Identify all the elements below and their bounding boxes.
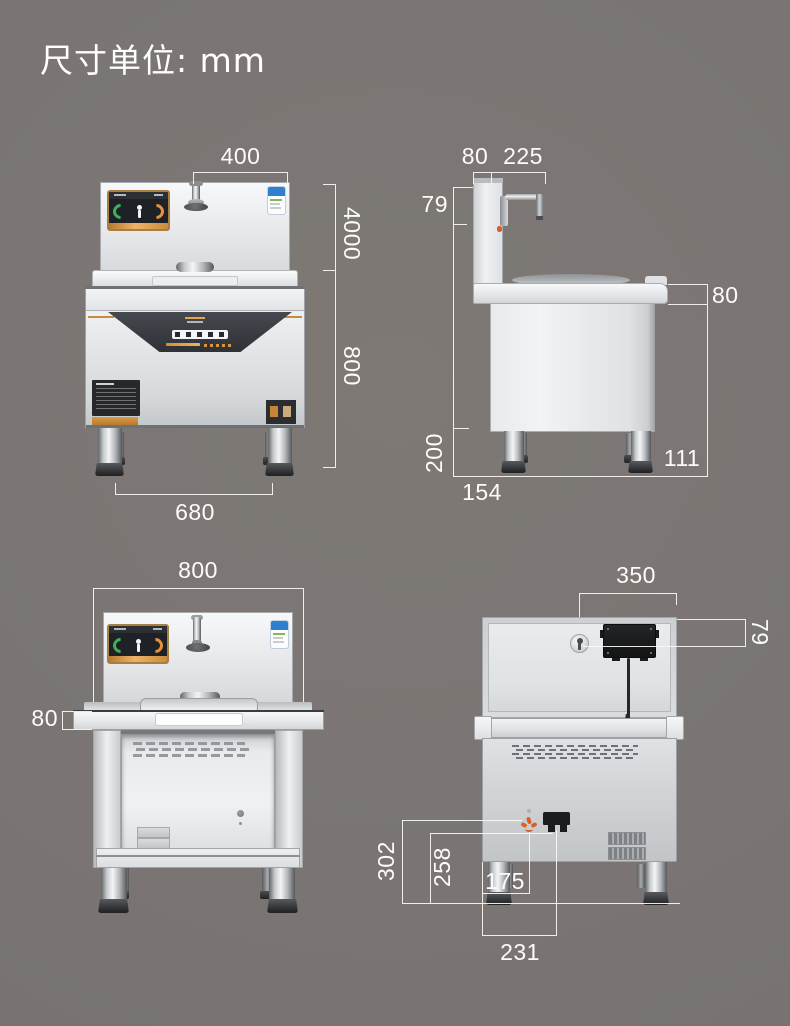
dimension-line (453, 187, 454, 476)
brand-logo (185, 317, 205, 319)
drawer-handle (155, 713, 243, 726)
dimension-line (62, 711, 92, 712)
body-bottom-line (86, 425, 304, 428)
counter-end-cap (666, 716, 684, 740)
panel-dot (239, 822, 242, 825)
side-vent (608, 832, 646, 845)
gauge-arc-right (146, 201, 167, 222)
control-display (107, 190, 170, 231)
leg-front (269, 868, 295, 904)
power-cable (627, 658, 630, 720)
spec-label-orange-strip (92, 417, 138, 425)
leg-foot (263, 457, 277, 465)
leg-foot (486, 892, 512, 905)
body-side (490, 304, 655, 432)
display-figure-icon (138, 210, 141, 218)
junction-box-ear (656, 630, 659, 638)
splash-top-cap (473, 178, 503, 183)
leg-front (98, 428, 122, 466)
orange-accent-right (276, 316, 302, 318)
panel-knob (237, 810, 244, 817)
vent-grille (136, 748, 250, 751)
dimension-line (579, 593, 677, 594)
dimension-label: 4000 (340, 196, 364, 272)
dimension-label: 231 (482, 940, 558, 964)
inlet-key-stem (578, 643, 581, 650)
dimension-line (402, 820, 403, 903)
frame-post-right (275, 730, 303, 868)
frame-post-left (93, 730, 121, 868)
vent-grille (512, 745, 638, 747)
leg-rear (505, 864, 513, 888)
connector-pin (560, 825, 567, 832)
counter-front-band (86, 289, 304, 311)
dimension-label: 111 (660, 446, 704, 470)
display-figure-icon (137, 205, 142, 210)
dimension-line (93, 588, 304, 589)
counter-band-rear (475, 718, 684, 738)
power-connector (543, 812, 570, 825)
energy-label (271, 621, 288, 648)
leg-foot (116, 891, 129, 899)
inlet-key (577, 638, 583, 644)
drain-icon (525, 827, 533, 832)
gauge-arc-left (110, 635, 131, 656)
button-strip (172, 330, 228, 339)
button-icons (175, 332, 225, 337)
indicator-dots (204, 344, 234, 347)
dimension-label: 225 (500, 144, 546, 168)
leg-front (488, 862, 510, 894)
drain-icon (530, 822, 537, 828)
lid-handle (176, 262, 214, 272)
lower-back-panel (482, 738, 677, 862)
dimension-label: 80 (712, 283, 748, 307)
drain-icon (520, 822, 527, 828)
back-panel (488, 623, 671, 712)
vent-grille (133, 754, 245, 757)
shelf-lip (96, 855, 300, 857)
ground-line (402, 903, 680, 904)
energy-label (268, 187, 285, 214)
countertop (73, 710, 324, 730)
leg-foot (501, 461, 526, 473)
leg-rear (118, 868, 129, 894)
leg-front (504, 431, 524, 463)
junction-box-tab (640, 658, 648, 661)
under-counter-shadow (93, 730, 303, 734)
dimension-label: 154 (458, 480, 506, 504)
faucet-head (191, 615, 203, 620)
dimension-label: 400 (198, 144, 283, 168)
dimension-label: 175 (480, 869, 530, 893)
vent-grille (133, 742, 245, 745)
counter-edge-line (73, 710, 324, 712)
faucet (193, 617, 201, 645)
leg-front (631, 431, 651, 463)
junction-box (603, 624, 656, 658)
faucet-tip (536, 216, 543, 220)
wok-collar-left (84, 702, 142, 711)
pilot-flame-icon (497, 226, 502, 232)
display-figure-icon (137, 644, 140, 652)
countertop-side (473, 283, 668, 304)
faucet-mount (500, 196, 508, 226)
leg-foot (643, 892, 669, 905)
dimension-label: 80 (18, 706, 58, 730)
leg-rear (626, 433, 634, 457)
dimension-line (473, 172, 546, 173)
bottom-shelf (96, 848, 300, 868)
dimension-line (707, 284, 708, 476)
faucet-head (189, 181, 203, 186)
dimension-label: 350 (600, 563, 672, 587)
brand-subtext (187, 321, 203, 323)
control-panel (108, 312, 292, 352)
inner-box (137, 838, 170, 849)
dimension-label: 680 (155, 500, 235, 524)
lid-handle (180, 692, 220, 701)
pot-lid-side (512, 274, 630, 286)
front-panel (121, 734, 275, 850)
view-rear: 350 (0, 0, 790, 1026)
dimension-line (193, 172, 288, 173)
leg-rear (113, 432, 124, 460)
side-vent (608, 847, 646, 860)
spec-label (92, 380, 140, 416)
faucet (192, 183, 200, 203)
dimension-label: 80 (455, 144, 495, 168)
leg-foot (265, 463, 294, 476)
junction-box-tab (612, 658, 620, 661)
display-figure-icon (136, 639, 141, 644)
body-front (85, 286, 305, 428)
junction-box-ear (600, 630, 603, 638)
vent-grille (516, 749, 636, 751)
page-title: 尺寸单位: mm (40, 34, 266, 82)
orange-slider (166, 343, 200, 346)
ground-line (453, 476, 708, 477)
dimension-line (430, 833, 431, 903)
inner-box (137, 827, 170, 838)
dimension-label: 302 (374, 836, 398, 886)
faucet-spout (536, 194, 543, 218)
wok-collar-right (250, 702, 312, 711)
faucet-collar (188, 199, 204, 206)
dimension-label: 200 (422, 428, 446, 478)
faucet-collar (192, 640, 202, 646)
counter-end-cap (474, 716, 492, 740)
control-display (107, 624, 169, 664)
dimension-label: 79 (412, 192, 448, 216)
back-panel-frame (482, 617, 677, 718)
water-inlet (570, 634, 589, 653)
faucet-base (186, 643, 210, 652)
orange-accent-left (88, 316, 114, 318)
dimension-label: 800 (340, 336, 364, 396)
dimension-line (677, 619, 745, 620)
display-text-dash (154, 194, 163, 196)
power-cable-end (624, 714, 629, 726)
dimension-line (335, 184, 336, 468)
dimension-line (115, 494, 273, 495)
connector-pin (548, 825, 555, 832)
leg-rear (637, 864, 645, 888)
screw-dot (527, 809, 531, 813)
leg-foot (111, 457, 125, 465)
leg-front (645, 862, 667, 894)
lid-platform (92, 270, 298, 287)
faucet-arm (505, 194, 543, 200)
splash-panel (103, 612, 293, 712)
corner-badge (266, 400, 296, 424)
display-orange-strip (109, 223, 168, 229)
counter-rear-cap (645, 276, 667, 285)
leg-foot (95, 463, 124, 476)
view-front-upper: 400 4000 800 680 (0, 0, 790, 1026)
drain-icon (526, 817, 532, 825)
leg-foot (624, 455, 635, 463)
leg-rear (265, 432, 276, 460)
leg-front (101, 868, 127, 904)
splash-panel-side (473, 178, 503, 284)
leg-foot (260, 891, 273, 899)
display-titlebar (109, 192, 168, 199)
dimension-label: 79 (748, 613, 772, 651)
leg-rear (518, 433, 527, 457)
leg-front (268, 428, 292, 466)
energy-label-header (268, 187, 285, 196)
gauge-arc-right (145, 635, 166, 656)
vent-grille (516, 757, 636, 759)
splash-panel (100, 182, 290, 286)
counter-edge-line (85, 286, 305, 289)
display-text-dash (114, 194, 126, 196)
faucet-base (184, 203, 208, 211)
gauge-arc-left (110, 201, 131, 222)
dimension-label: 800 (158, 558, 238, 582)
diagram-canvas: 尺寸单位: mm (0, 0, 790, 1026)
pot-lid (140, 698, 258, 711)
body-side-shade (648, 304, 655, 432)
view-side: 80 225 79 200 154 80 111 (0, 0, 790, 1026)
lid-recess (152, 276, 238, 286)
dimension-label: 258 (430, 843, 454, 891)
leg-foot (628, 461, 653, 473)
leg-foot (267, 899, 298, 913)
leg-foot (98, 899, 129, 913)
leg-foot (516, 455, 528, 463)
view-front-lower: 800 (0, 0, 790, 1026)
leg-rear (262, 868, 273, 894)
vent-grille (512, 753, 638, 755)
